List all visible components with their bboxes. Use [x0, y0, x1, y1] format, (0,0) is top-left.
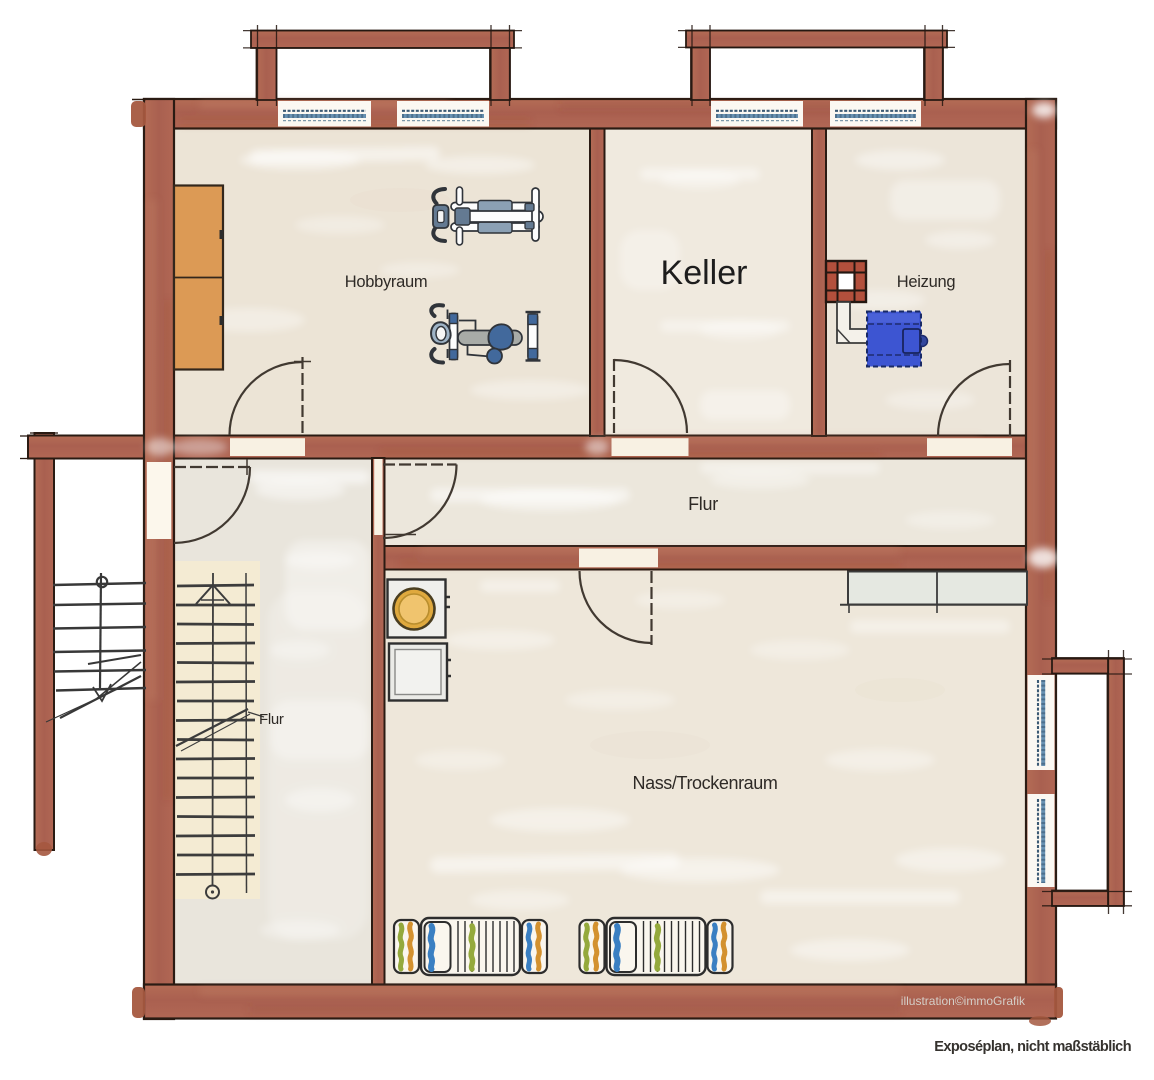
svg-text:Nass/Trockenraum: Nass/Trockenraum [633, 773, 778, 793]
svg-text:Exposéplan, nicht maßstäblich: Exposéplan, nicht maßstäblich [934, 1039, 1131, 1055]
svg-text:Heizung: Heizung [897, 273, 956, 291]
svg-text:Hobbyraum: Hobbyraum [345, 273, 428, 291]
svg-text:illustration©immoGrafik: illustration©immoGrafik [901, 994, 1026, 1008]
svg-text:Flur: Flur [259, 711, 284, 728]
svg-text:Keller: Keller [661, 254, 748, 292]
svg-text:Flur: Flur [688, 494, 718, 514]
